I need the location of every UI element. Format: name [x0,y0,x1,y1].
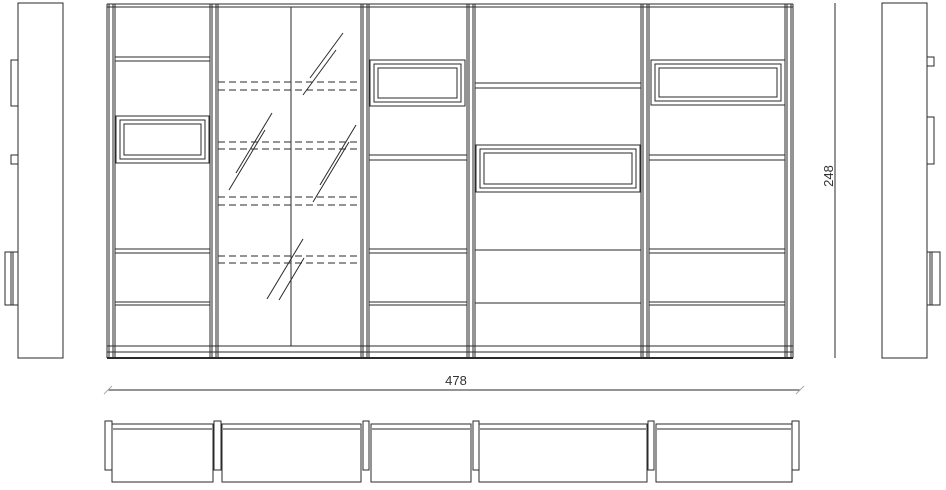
side-left-small-protrusion [11,155,18,164]
drawing-surface [0,0,946,490]
glass-hatch-line [310,33,343,78]
display-box-frame [476,145,640,192]
side-left-upper-protrusion [11,60,18,106]
display-box-frame [370,60,465,106]
plan-divider-strip [105,421,112,470]
side-right-body [882,3,927,358]
plan-module-box [112,424,213,482]
glass-hatch-line [236,113,272,173]
plan-divider-strip [792,421,799,470]
section-5-shelving [649,60,785,305]
plan-divider-strip [473,421,479,470]
dimension-width-label: 478 [440,374,472,388]
display-box-frame [378,68,457,98]
display-box-frame [484,153,632,184]
furniture-technical-drawing: 478 248 [0,0,946,490]
section-3-shelving [369,60,467,305]
plan-module-box [371,424,471,482]
side-right-small-protrusion [927,57,934,66]
display-box-frame [124,124,201,155]
display-box-frame [116,116,209,163]
display-box-frame [374,64,461,102]
section-1-shelving [115,57,210,305]
plan-module-box [656,424,792,482]
plan-module-box [222,424,361,482]
plan-divider-strip [648,421,654,470]
display-box-frame [659,68,777,97]
glass-hatch-line [313,142,349,202]
plan-divider-strip [214,421,221,470]
side-panel-right [882,3,940,358]
side-right-lower-protrusion [927,252,940,305]
plan-view [105,421,799,482]
side-left-body [18,3,63,358]
dimension-height-label: 248 [822,160,836,192]
section-2-glass-doors [218,7,361,346]
plan-divider-strip [363,421,369,470]
display-box-frame [651,60,785,105]
plan-module-box [479,424,647,482]
glass-hatch-line [303,50,336,95]
display-box-frame [480,149,636,188]
glass-hatch-line [320,125,356,185]
display-box-frame [120,120,205,159]
display-box-frame [655,64,781,101]
side-panel-left [5,3,63,358]
section-4-shelving [475,83,641,303]
side-right-upper-protrusion [927,117,934,164]
glass-hatch-line [229,130,265,190]
